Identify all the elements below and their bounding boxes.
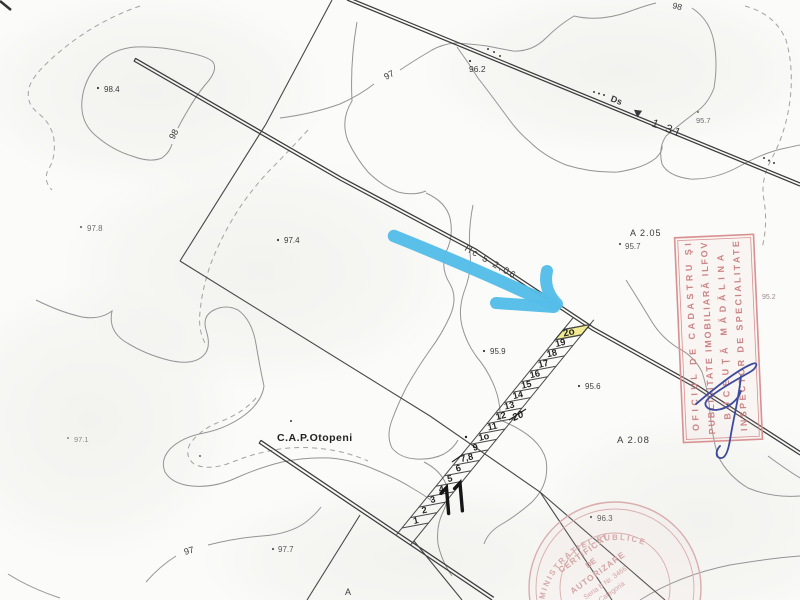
svg-text:95.6: 95.6 [585, 382, 601, 391]
svg-text:A 2.05: A 2.05 [630, 228, 662, 238]
svg-text:97.7: 97.7 [278, 545, 294, 554]
svg-text:95.2: 95.2 [762, 294, 776, 301]
svg-text:97.4: 97.4 [284, 236, 300, 245]
svg-text:95.7: 95.7 [696, 116, 711, 125]
svg-text:97.1: 97.1 [74, 435, 89, 444]
svg-text:95.9: 95.9 [490, 347, 506, 356]
svg-text:95.7: 95.7 [625, 242, 641, 251]
svg-text:97.8: 97.8 [87, 224, 103, 233]
svg-text:A: A [345, 587, 351, 597]
svg-text:98.4: 98.4 [104, 85, 120, 94]
svg-text:A 2.08: A 2.08 [617, 435, 650, 446]
svg-text:C.A.P.Otopeni: C.A.P.Otopeni [277, 432, 353, 444]
svg-text:96.2: 96.2 [469, 64, 486, 74]
